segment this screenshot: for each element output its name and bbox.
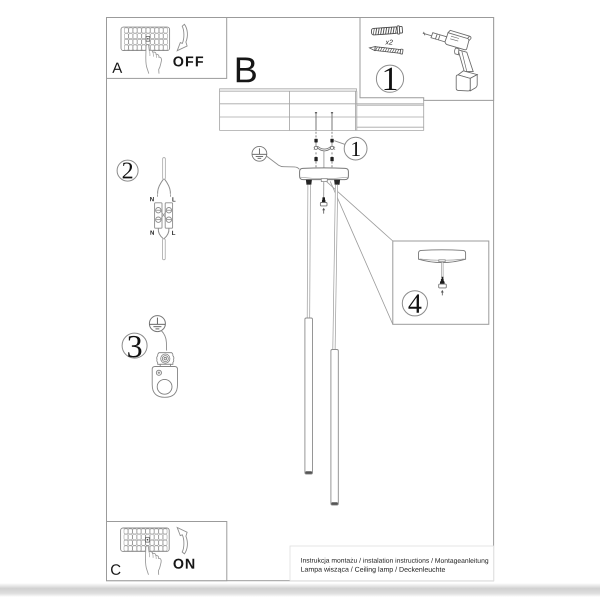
svg-text:C: C (110, 562, 121, 579)
svg-text:x2: x2 (384, 39, 393, 46)
svg-text:A: A (112, 60, 122, 77)
svg-text:1: 1 (350, 137, 361, 161)
svg-text:Instrukcja montażu / instalati: Instrukcja montażu / instalation instruc… (301, 558, 489, 565)
svg-text:3: 3 (127, 328, 143, 364)
svg-text:OFF: OFF (173, 54, 205, 70)
svg-text:1: 1 (381, 61, 398, 98)
svg-text:B: B (234, 49, 258, 90)
svg-text:N: N (150, 196, 154, 203)
svg-text:L: L (172, 230, 176, 237)
svg-text:Lampa wisząca / Ceiling lamp /: Lampa wisząca / Ceiling lamp / Deckenleu… (301, 566, 446, 574)
svg-text:4: 4 (408, 289, 422, 320)
svg-text:ON: ON (173, 557, 196, 573)
svg-text:L: L (172, 197, 176, 204)
svg-text:N: N (150, 230, 154, 237)
svg-text:2: 2 (122, 158, 134, 184)
